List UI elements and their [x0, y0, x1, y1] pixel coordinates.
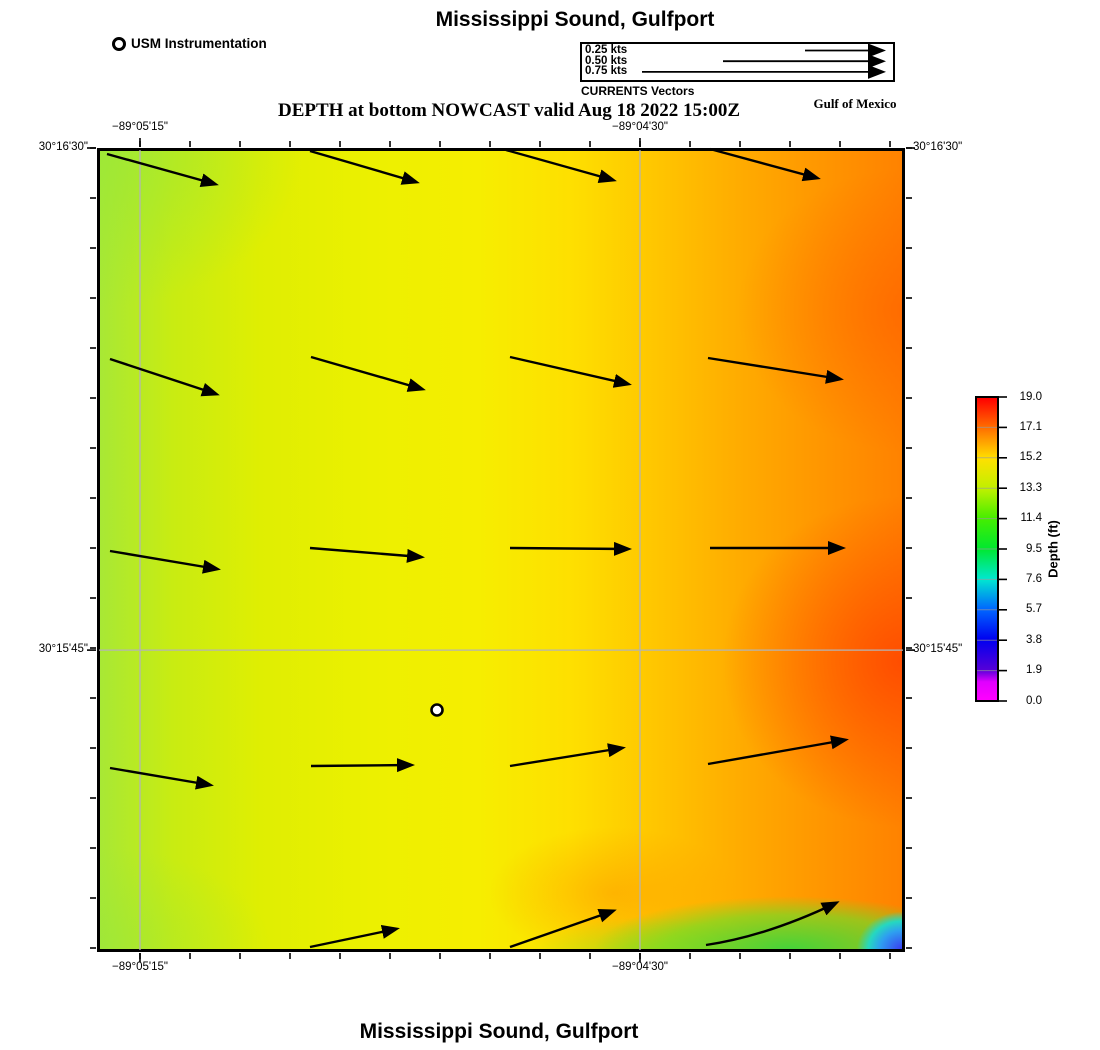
- legend-speed-label: 0.50 kts: [585, 56, 627, 66]
- colorbar-tick-label: 13.3: [1008, 482, 1042, 494]
- colorbar-tick-label: 15.2: [1008, 451, 1042, 463]
- instrumentation-legend-label: USM Instrumentation: [131, 36, 267, 51]
- colorbar-axis-label: Depth (ft): [1046, 520, 1061, 578]
- y-tick-label-right: 30°16'30": [913, 141, 997, 153]
- currents-vectors-caption: CURRENTS Vectors: [581, 84, 694, 98]
- x-tick-label-top: −89°04'30": [580, 121, 700, 133]
- legend-speed-label: 0.75 kts: [585, 66, 627, 76]
- colorbar-tick-label: 5.7: [1008, 603, 1042, 615]
- chart-subtitle: DEPTH at bottom NOWCAST valid Aug 18 202…: [278, 100, 740, 122]
- x-tick-label-bottom: −89°05'15": [80, 961, 200, 973]
- station-circle-icon: [112, 37, 126, 51]
- instrumentation-legend: USM Instrumentation: [112, 36, 267, 51]
- footer-title: Mississippi Sound, Gulfport: [360, 1020, 639, 1044]
- nowcast-chart-page: Mississippi Sound, Gulfport USM Instrume…: [0, 0, 1100, 1050]
- legend-speed-label: 0.25 kts: [585, 45, 627, 55]
- colorbar-tick-label: 17.1: [1008, 421, 1042, 433]
- y-tick-label-left: 30°15'45": [4, 643, 88, 655]
- colorbar-tick-label: 9.5: [1008, 543, 1042, 555]
- colorbar-tick-label: 0.0: [1008, 695, 1042, 707]
- colorbar-tick-label: 3.8: [1008, 634, 1042, 646]
- colorbar-tick-label: 19.0: [1008, 391, 1042, 403]
- colorbar-tick-label: 7.6: [1008, 573, 1042, 585]
- y-tick-label-left: 30°16'30": [4, 141, 88, 153]
- depth-heatmap: [97, 148, 905, 952]
- current-speed-legend-box: [580, 42, 895, 82]
- y-tick-label-right: 30°15'45": [913, 643, 997, 655]
- colorbar-tick-label: 1.9: [1008, 664, 1042, 676]
- x-tick-label-top: −89°05'15": [80, 121, 200, 133]
- x-tick-label-bottom: −89°04'30": [580, 961, 700, 973]
- depth-colorbar: [975, 396, 999, 702]
- region-label: Gulf of Mexico: [813, 96, 896, 112]
- colorbar-tick-label: 11.4: [1008, 512, 1042, 524]
- page-title: Mississippi Sound, Gulfport: [436, 8, 715, 32]
